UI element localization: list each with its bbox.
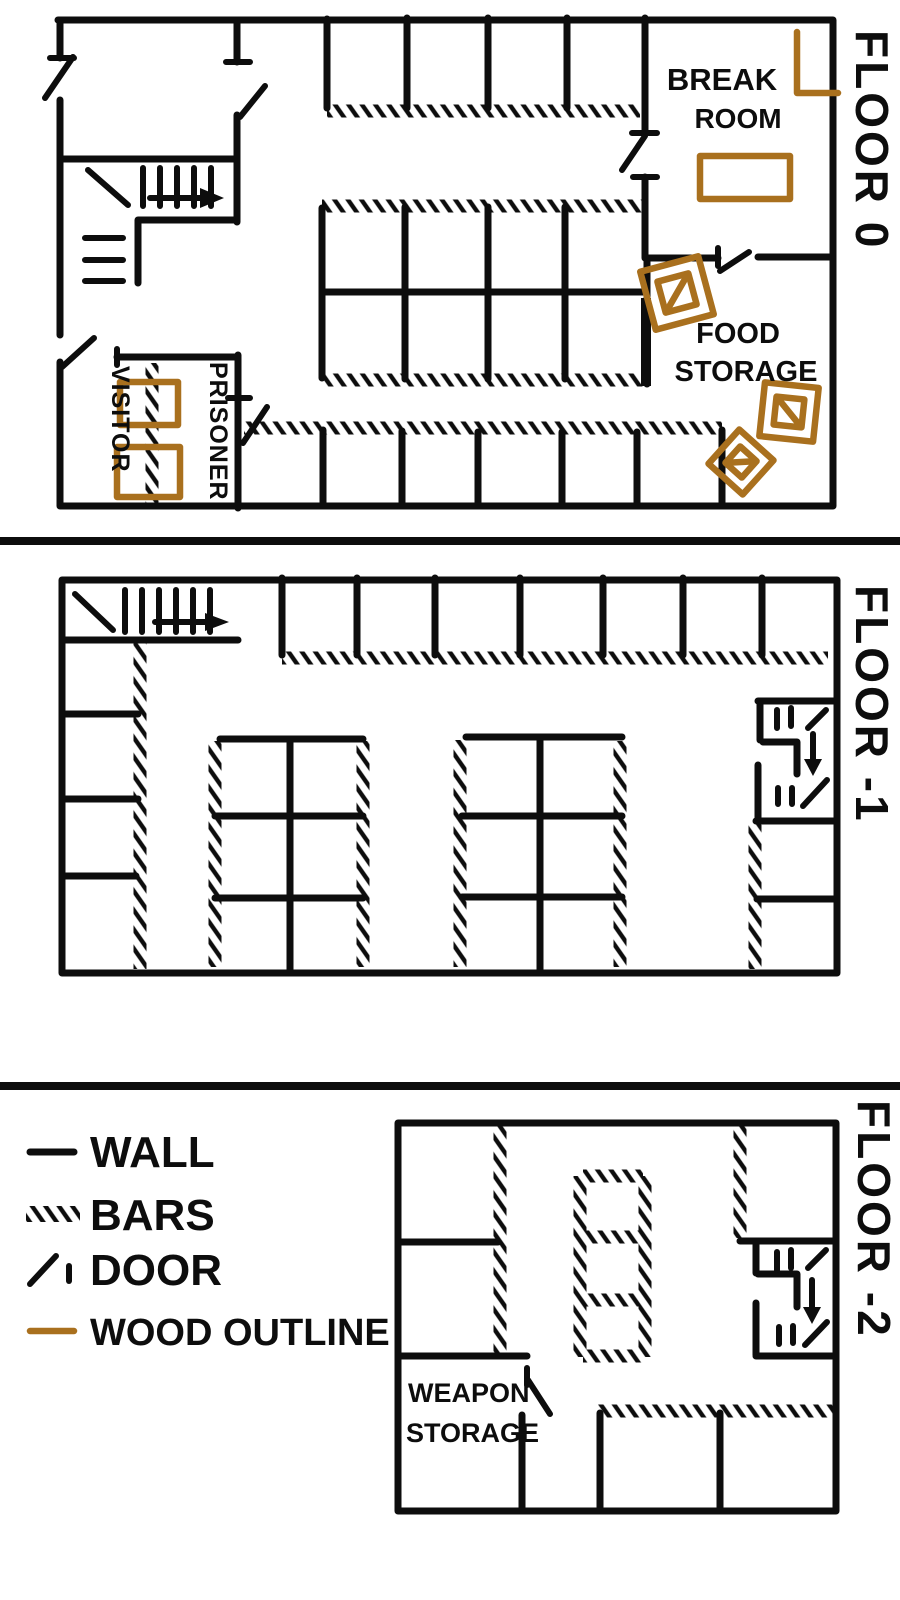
floor-1-bars-lines	[140, 643, 828, 969]
legend-door-label: DOOR	[90, 1246, 222, 1295]
prison-floorplan-drawing: BREAK ROOM FOOD STORAGE VISITOR PRISONER…	[0, 0, 900, 1600]
stairs-down-icon	[777, 1250, 827, 1345]
floor-minus-1-plan: FLOOR -1	[62, 578, 898, 973]
floor-2-bars-lines	[500, 1125, 834, 1411]
food-storage-label: STORAGE	[675, 356, 818, 388]
weapon-storage-label: WEAPON	[408, 1378, 530, 1408]
stairs-arrow-icon	[205, 613, 229, 631]
break-room-table-wood	[700, 156, 790, 199]
weapon-storage-label: STORAGE	[406, 1418, 539, 1448]
legend-door-swatch	[30, 1256, 69, 1284]
floorplan-svg: BREAK ROOM FOOD STORAGE VISITOR PRISONER…	[0, 0, 900, 1600]
stairs-down-icon	[85, 168, 224, 281]
floor-minus-2-title: FLOOR -2	[848, 1100, 900, 1339]
stairs-down-icon	[777, 708, 827, 806]
weapon-storage-door-swing	[528, 1380, 550, 1414]
stairs-arrow-icon	[803, 1307, 821, 1324]
visitor-label: VISITOR	[106, 366, 134, 473]
stairs-arrow-icon	[804, 759, 822, 776]
floor-0-title: FLOOR 0	[846, 30, 898, 250]
floor-0-plan: BREAK ROOM FOOD STORAGE VISITOR PRISONER…	[45, 18, 898, 508]
prisoner-label: PRISONER	[204, 362, 232, 501]
break-room-label: ROOM	[694, 103, 781, 134]
floor-1-walls	[62, 578, 837, 973]
legend-wall-label: WALL	[90, 1128, 215, 1177]
legend-bars-label: BARS	[90, 1191, 215, 1240]
crate-icon	[759, 382, 818, 441]
legend-wood-label: WOOD OUTLINE	[90, 1312, 390, 1354]
floor-minus-1-title: FLOOR -1	[846, 585, 898, 824]
stairs-down-icon	[75, 590, 229, 632]
legend: WALL BARS DOOR WOOD OUTLINE	[26, 1128, 390, 1354]
food-storage-label: FOOD	[696, 318, 780, 350]
floor-minus-2-plan: WEAPON STORAGE FLOOR -2	[398, 1100, 900, 1511]
break-room-label: BREAK	[667, 62, 778, 97]
